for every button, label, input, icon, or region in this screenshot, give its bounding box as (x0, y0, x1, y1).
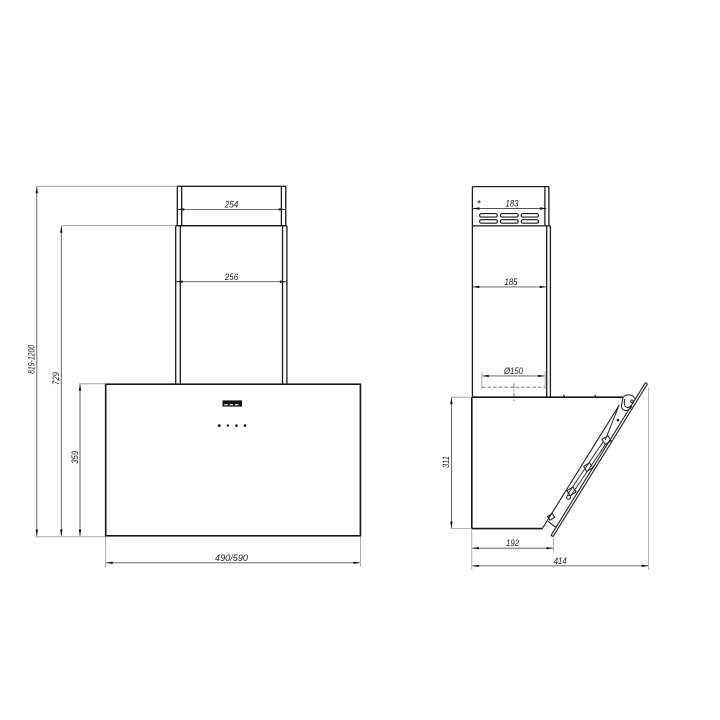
svg-text:256: 256 (224, 272, 239, 282)
svg-text:311: 311 (441, 456, 451, 468)
svg-text:183: 183 (506, 199, 520, 209)
svg-text:490/590: 490/590 (215, 553, 249, 563)
svg-text:414: 414 (554, 556, 567, 566)
svg-text:254: 254 (224, 200, 238, 210)
svg-text:819-1200: 819-1200 (27, 344, 37, 374)
svg-text:729: 729 (51, 372, 61, 385)
svg-text:359: 359 (70, 451, 80, 464)
svg-text:185: 185 (505, 277, 519, 287)
svg-text:Ø150: Ø150 (503, 366, 524, 376)
svg-text:192: 192 (506, 538, 520, 548)
